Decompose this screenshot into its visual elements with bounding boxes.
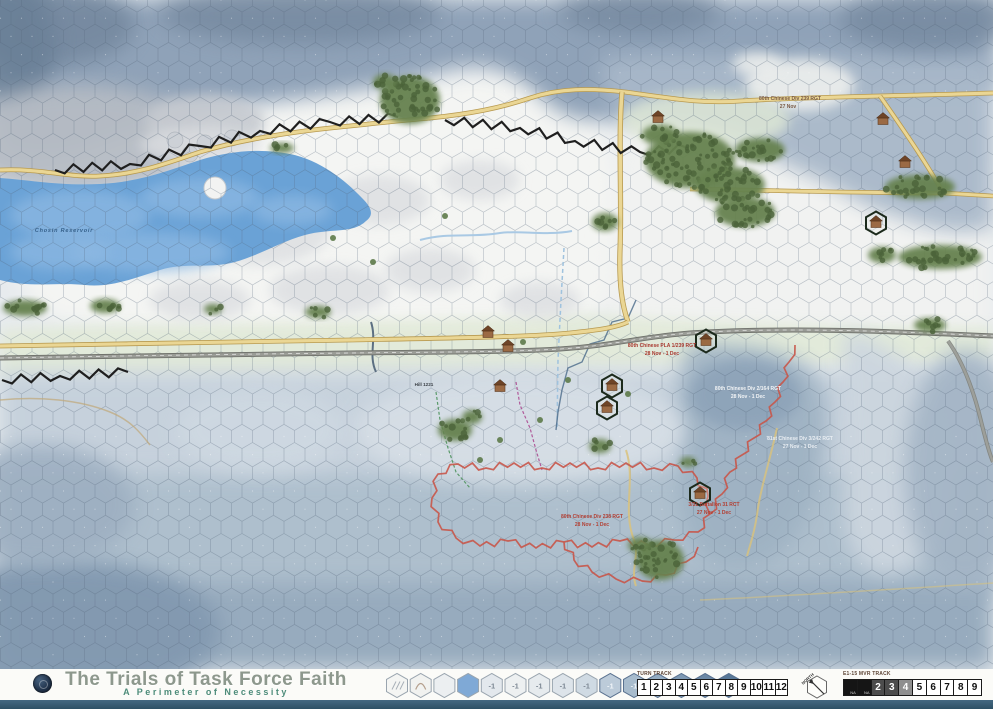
title-block: The Trials of Task Force Faith A Perimet…	[0, 670, 412, 697]
terrain-key-hex: -1	[552, 673, 573, 697]
building-icon	[483, 331, 493, 338]
mvr-track-cell: 2	[871, 679, 886, 696]
bottom-edge-strip	[0, 700, 993, 709]
building-icon	[701, 339, 711, 346]
turn-track: TURN TRACK 123456789101112	[637, 671, 788, 696]
mvr-track-label: E1-15 MVR TRACK	[843, 671, 982, 677]
turn-track-cell: 2	[650, 679, 664, 696]
map-label: 27 Nov - 1 Dec	[697, 510, 731, 516]
turn-track-cells: 123456789101112	[637, 679, 788, 696]
turn-track-cell: 5	[687, 679, 701, 696]
turn-track-cell: 12	[775, 679, 789, 696]
map-label: 27 Nov - 1 Dec	[783, 444, 817, 450]
mvr-track-cell: NA	[857, 679, 872, 696]
terrain-key-hex: -1	[576, 673, 597, 697]
map-label: Hill 1221	[415, 382, 434, 387]
svg-text:-1: -1	[560, 681, 567, 690]
map-label: 28 Nov - 1 Dec	[575, 522, 609, 528]
turn-track-cell: 9	[737, 679, 751, 696]
na-label: NA	[864, 691, 870, 695]
building-icon	[653, 116, 663, 123]
map-subtitle: A Perimeter of Necessity	[0, 687, 412, 697]
map-label: 3/31 Battalion 31 RCT	[688, 502, 739, 508]
mvr-track-cell: 9	[967, 679, 982, 696]
map-label: 80th Chinese Div 2/164 RGT	[715, 386, 781, 392]
terrain-key-hex: -1	[600, 673, 621, 697]
svg-text:-1: -1	[512, 681, 519, 690]
mvr-track-cell: 7	[940, 679, 955, 696]
terrain-key-hex	[387, 673, 408, 697]
building-icon	[602, 406, 612, 413]
map-label: 28 Nov - 1 Dec	[645, 351, 679, 357]
building-icon	[607, 384, 617, 391]
terrain-key-hex	[410, 673, 431, 697]
svg-text:-1: -1	[583, 681, 590, 690]
map-label: 80th Chinese Div 238 RGT	[561, 514, 623, 520]
svg-text:-1: -1	[488, 681, 495, 690]
mvr-track-cell: 8	[953, 679, 968, 696]
map-label: Chosin Reservoir	[35, 228, 93, 234]
map-label: 80th Chinese Div 239 RGT	[759, 96, 821, 102]
building-icon	[495, 385, 505, 392]
wargame-map-sheet: Chosin Reservoir80th Chinese Div 239 RGT…	[0, 0, 993, 709]
terrain-key-hex	[458, 673, 479, 697]
terrain-key-hex	[434, 673, 455, 697]
svg-text:-1: -1	[607, 681, 614, 690]
turn-track-cell: 4	[675, 679, 689, 696]
building-icon	[503, 345, 513, 352]
turn-track-cell: 1	[637, 679, 651, 696]
map-label: 81st Chinese Div 3/242 RGT	[767, 436, 833, 442]
turn-track-cell: 11	[762, 679, 776, 696]
building-icon	[878, 118, 888, 125]
mvr-track-cells: NANA23456789	[843, 679, 982, 696]
map-label: 28 Nov - 1 Dec	[731, 394, 765, 400]
turn-track-cell: 8	[725, 679, 739, 696]
mvr-track-cell: 4	[898, 679, 913, 696]
mvr-track-cell: 5	[912, 679, 927, 696]
mvr-track: E1-15 MVR TRACK NANA23456789	[843, 671, 982, 696]
terrain-key-hex: -1	[505, 673, 526, 697]
turn-track-cell: 6	[700, 679, 714, 696]
hex-map: Chosin Reservoir80th Chinese Div 239 RGT…	[0, 0, 993, 669]
mvr-track-cell: 3	[884, 679, 899, 696]
svg-text:-1: -1	[536, 681, 543, 690]
turn-track-cell: 10	[750, 679, 764, 696]
turn-track-cell: 7	[712, 679, 726, 696]
terrain-key-hex: -1	[529, 673, 550, 697]
map-label: 80th Chinese PLA 1/239 RGT	[628, 343, 696, 349]
building-icon	[695, 492, 705, 499]
terrain-key-hex: -1	[481, 673, 502, 697]
building-icon	[871, 221, 881, 228]
building-icon	[900, 161, 910, 168]
mvr-track-cell: 6	[926, 679, 941, 696]
na-label: NA	[850, 691, 856, 695]
north-compass-icon: NORTH	[799, 673, 835, 700]
map-label: 27 Nov	[780, 104, 797, 110]
turn-track-label: TURN TRACK	[637, 671, 788, 677]
map-footer: The Trials of Task Force Faith A Perimet…	[0, 669, 993, 700]
mvr-track-cell: NA	[843, 679, 858, 696]
turn-track-cell: 3	[662, 679, 676, 696]
